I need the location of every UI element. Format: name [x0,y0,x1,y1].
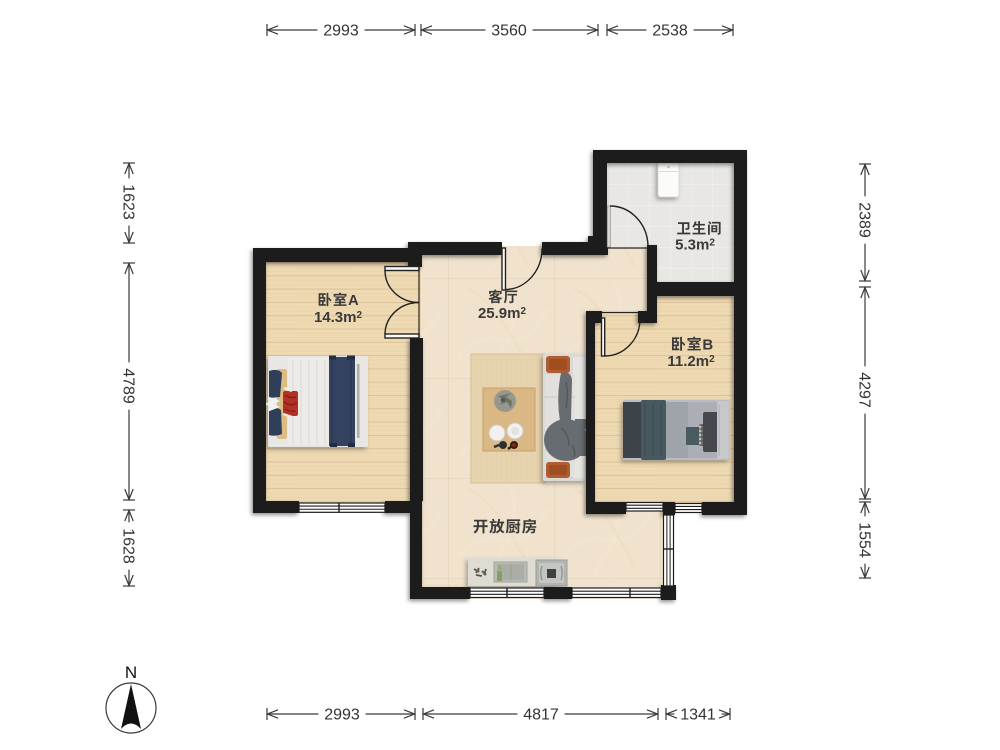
svg-text:1628: 1628 [119,528,136,564]
svg-text:A: A [348,293,359,309]
svg-text:4817: 4817 [523,707,559,724]
svg-text:5.3m2: 5.3m2 [675,237,715,254]
svg-text:2538: 2538 [652,23,688,40]
svg-text:14.3m2: 14.3m2 [314,309,363,326]
svg-text:2389: 2389 [855,202,872,238]
svg-text:1623: 1623 [119,184,136,220]
svg-text:B: B [702,337,713,354]
svg-text:1554: 1554 [855,522,872,558]
svg-text:2993: 2993 [323,23,359,40]
svg-text:3560: 3560 [491,23,527,40]
svg-text:25.9m2: 25.9m2 [478,305,527,322]
svg-text:2993: 2993 [324,707,360,724]
svg-text:N: N [125,663,137,682]
svg-text:4297: 4297 [855,372,872,408]
svg-text:11.2m2: 11.2m2 [667,353,715,370]
svg-text:4789: 4789 [119,368,136,404]
svg-text:1341: 1341 [680,707,716,724]
